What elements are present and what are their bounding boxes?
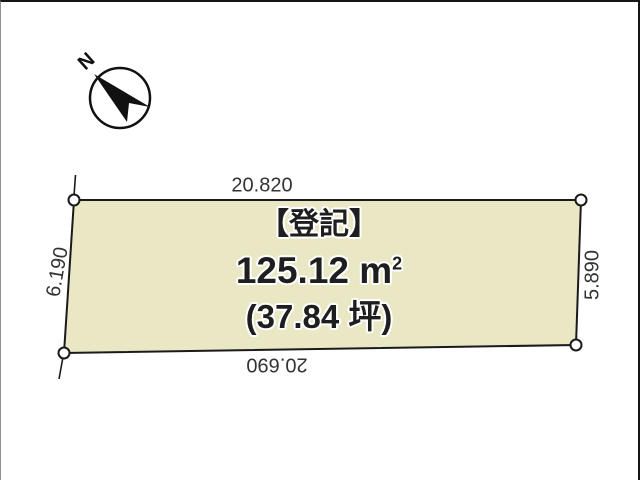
area-superscript: 2 xyxy=(392,254,402,274)
boundary-extension-line-bottom xyxy=(59,357,63,379)
plot-vertex-marker-top-right xyxy=(576,195,587,206)
area-value: 125.12 m xyxy=(236,250,392,291)
plot-vertex-marker-bottom-right xyxy=(571,340,582,351)
plot-info: 【登記】 125.12 m2 (37.84 坪) xyxy=(236,202,402,340)
compass xyxy=(90,68,150,128)
dimension-right-label: 5.890 xyxy=(582,250,605,300)
registration-title: 【登記】 xyxy=(236,202,402,248)
plot-diagram-canvas: N 20.820 20.690 6.190 5.890 【登記】 125.12 … xyxy=(0,0,640,480)
area-tsubo: (37.84 坪) xyxy=(236,294,402,340)
plot-vertex-marker-bottom-left xyxy=(59,348,70,359)
dimension-top-label: 20.820 xyxy=(231,175,292,198)
plot-vertex-marker-top-left xyxy=(69,195,80,206)
area-square-meters: 125.12 m2 xyxy=(236,248,402,294)
boundary-extension-line-top xyxy=(74,175,76,196)
dimension-bottom-label: 20.690 xyxy=(246,353,307,376)
